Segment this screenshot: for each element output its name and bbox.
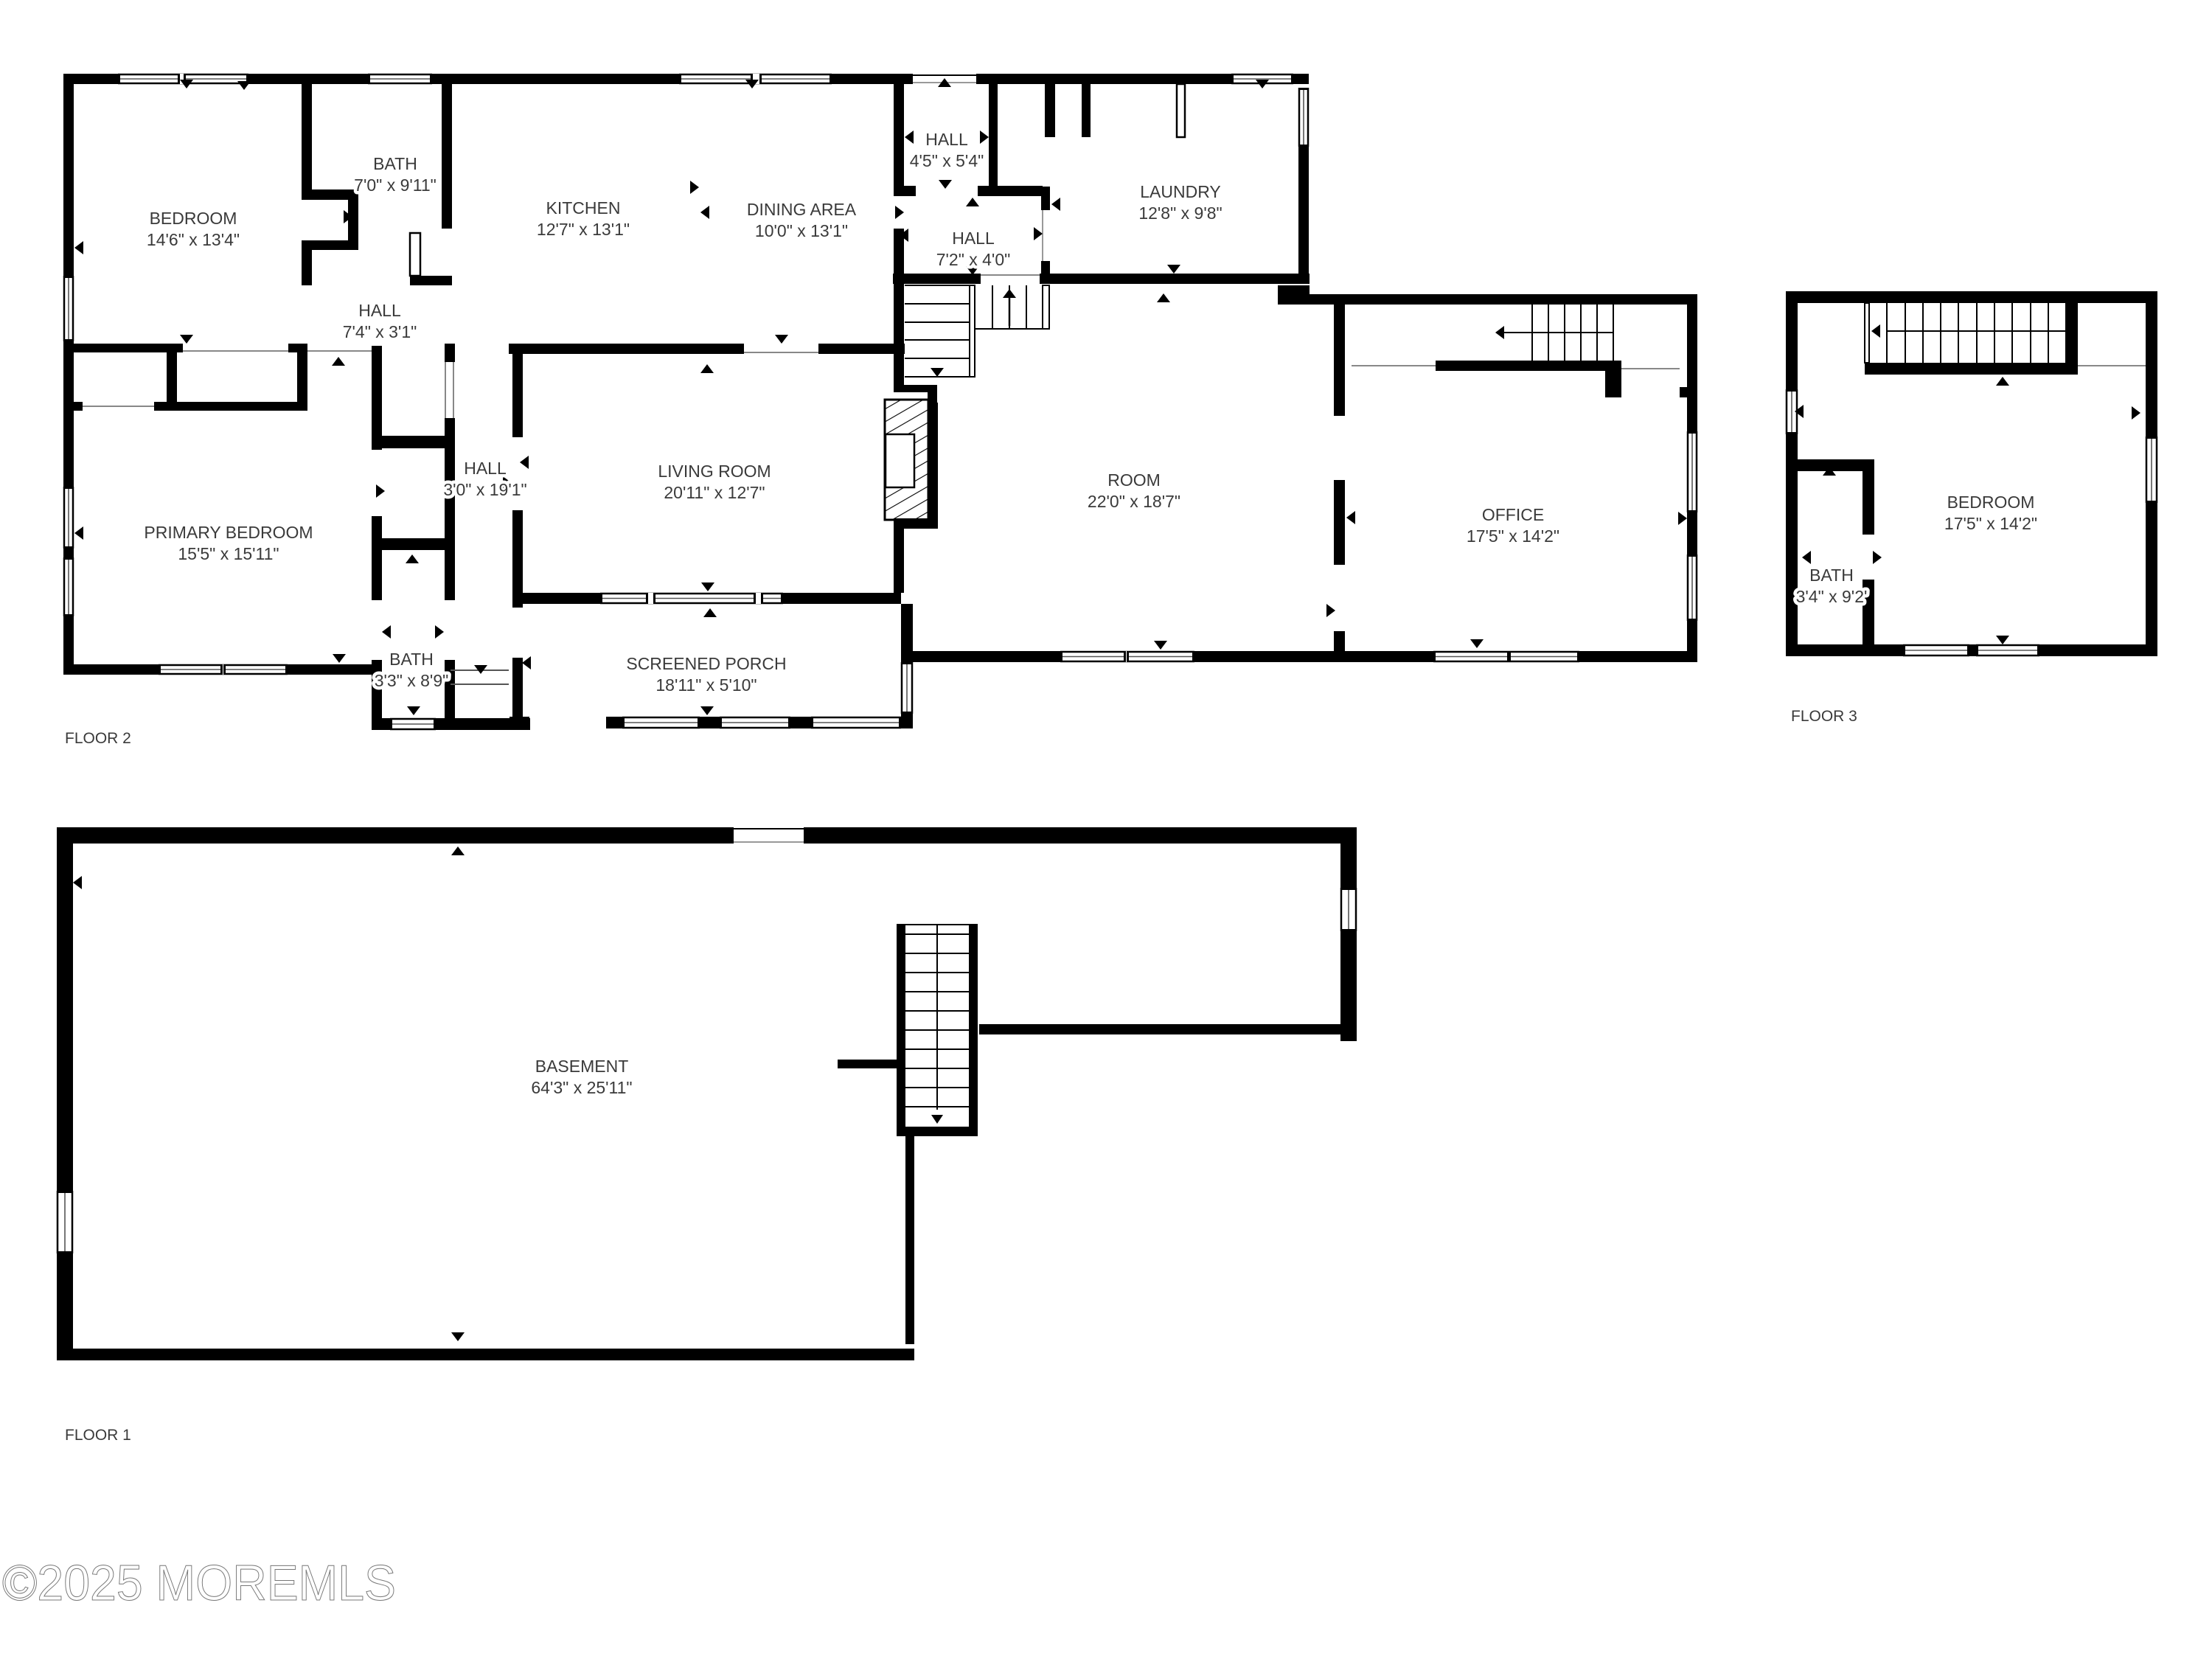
svg-text:LIVING ROOM: LIVING ROOM bbox=[658, 462, 771, 481]
svg-text:7'2" x 4'0": 7'2" x 4'0" bbox=[936, 250, 1011, 269]
svg-text:FLOOR 2: FLOOR 2 bbox=[65, 730, 131, 747]
svg-text:HALL: HALL bbox=[925, 130, 968, 149]
svg-text:12'8" x 9'8": 12'8" x 9'8" bbox=[1138, 204, 1222, 223]
svg-text:DINING AREA: DINING AREA bbox=[747, 200, 857, 219]
svg-text:BEDROOM: BEDROOM bbox=[1947, 493, 2035, 512]
svg-text:HALL: HALL bbox=[358, 301, 401, 320]
svg-text:15'5" x 15'11": 15'5" x 15'11" bbox=[178, 544, 279, 563]
svg-text:10'0" x 13'1": 10'0" x 13'1" bbox=[755, 221, 848, 240]
svg-text:ROOM: ROOM bbox=[1107, 470, 1161, 490]
svg-text:64'3" x 25'11": 64'3" x 25'11" bbox=[531, 1078, 632, 1097]
svg-text:12'7" x 13'1": 12'7" x 13'1" bbox=[537, 220, 630, 239]
svg-text:14'6" x 13'4": 14'6" x 13'4" bbox=[147, 230, 240, 249]
svg-text:BATH: BATH bbox=[389, 650, 434, 669]
svg-text:BATH: BATH bbox=[373, 154, 417, 173]
svg-text:20'11" x 12'7": 20'11" x 12'7" bbox=[664, 483, 765, 502]
svg-text:17'5" x 14'2": 17'5" x 14'2" bbox=[1467, 526, 1559, 546]
svg-text:©2025 MOREMLS: ©2025 MOREMLS bbox=[2, 1555, 396, 1611]
svg-text:HALL: HALL bbox=[952, 229, 995, 248]
svg-text:7'0" x 9'11": 7'0" x 9'11" bbox=[354, 175, 437, 195]
svg-text:FLOOR 1: FLOOR 1 bbox=[65, 1427, 131, 1444]
svg-text:3'3" x 8'9": 3'3" x 8'9" bbox=[375, 671, 449, 690]
svg-text:3'4" x 9'2': 3'4" x 9'2' bbox=[1796, 587, 1868, 606]
svg-text:BEDROOM: BEDROOM bbox=[150, 209, 237, 228]
svg-text:3'0" x 19'1": 3'0" x 19'1" bbox=[443, 480, 526, 499]
svg-text:4'5" x 5'4": 4'5" x 5'4" bbox=[910, 151, 984, 170]
svg-text:FLOOR 3: FLOOR 3 bbox=[1791, 708, 1857, 725]
svg-text:OFFICE: OFFICE bbox=[1482, 505, 1544, 524]
svg-text:18'11" x 5'10": 18'11" x 5'10" bbox=[655, 675, 757, 695]
svg-text:7'4" x 3'1": 7'4" x 3'1" bbox=[343, 322, 417, 341]
svg-text:KITCHEN: KITCHEN bbox=[546, 198, 621, 218]
svg-text:PRIMARY BEDROOM: PRIMARY BEDROOM bbox=[144, 523, 313, 542]
svg-text:BATH: BATH bbox=[1809, 566, 1854, 585]
svg-text:HALL: HALL bbox=[464, 459, 507, 478]
svg-text:SCREENED PORCH: SCREENED PORCH bbox=[626, 654, 786, 673]
svg-text:22'0" x 18'7": 22'0" x 18'7" bbox=[1088, 492, 1180, 511]
svg-text:BASEMENT: BASEMENT bbox=[535, 1057, 629, 1076]
svg-text:17'5" x 14'2": 17'5" x 14'2" bbox=[1944, 514, 2037, 533]
svg-text:LAUNDRY: LAUNDRY bbox=[1140, 182, 1221, 201]
